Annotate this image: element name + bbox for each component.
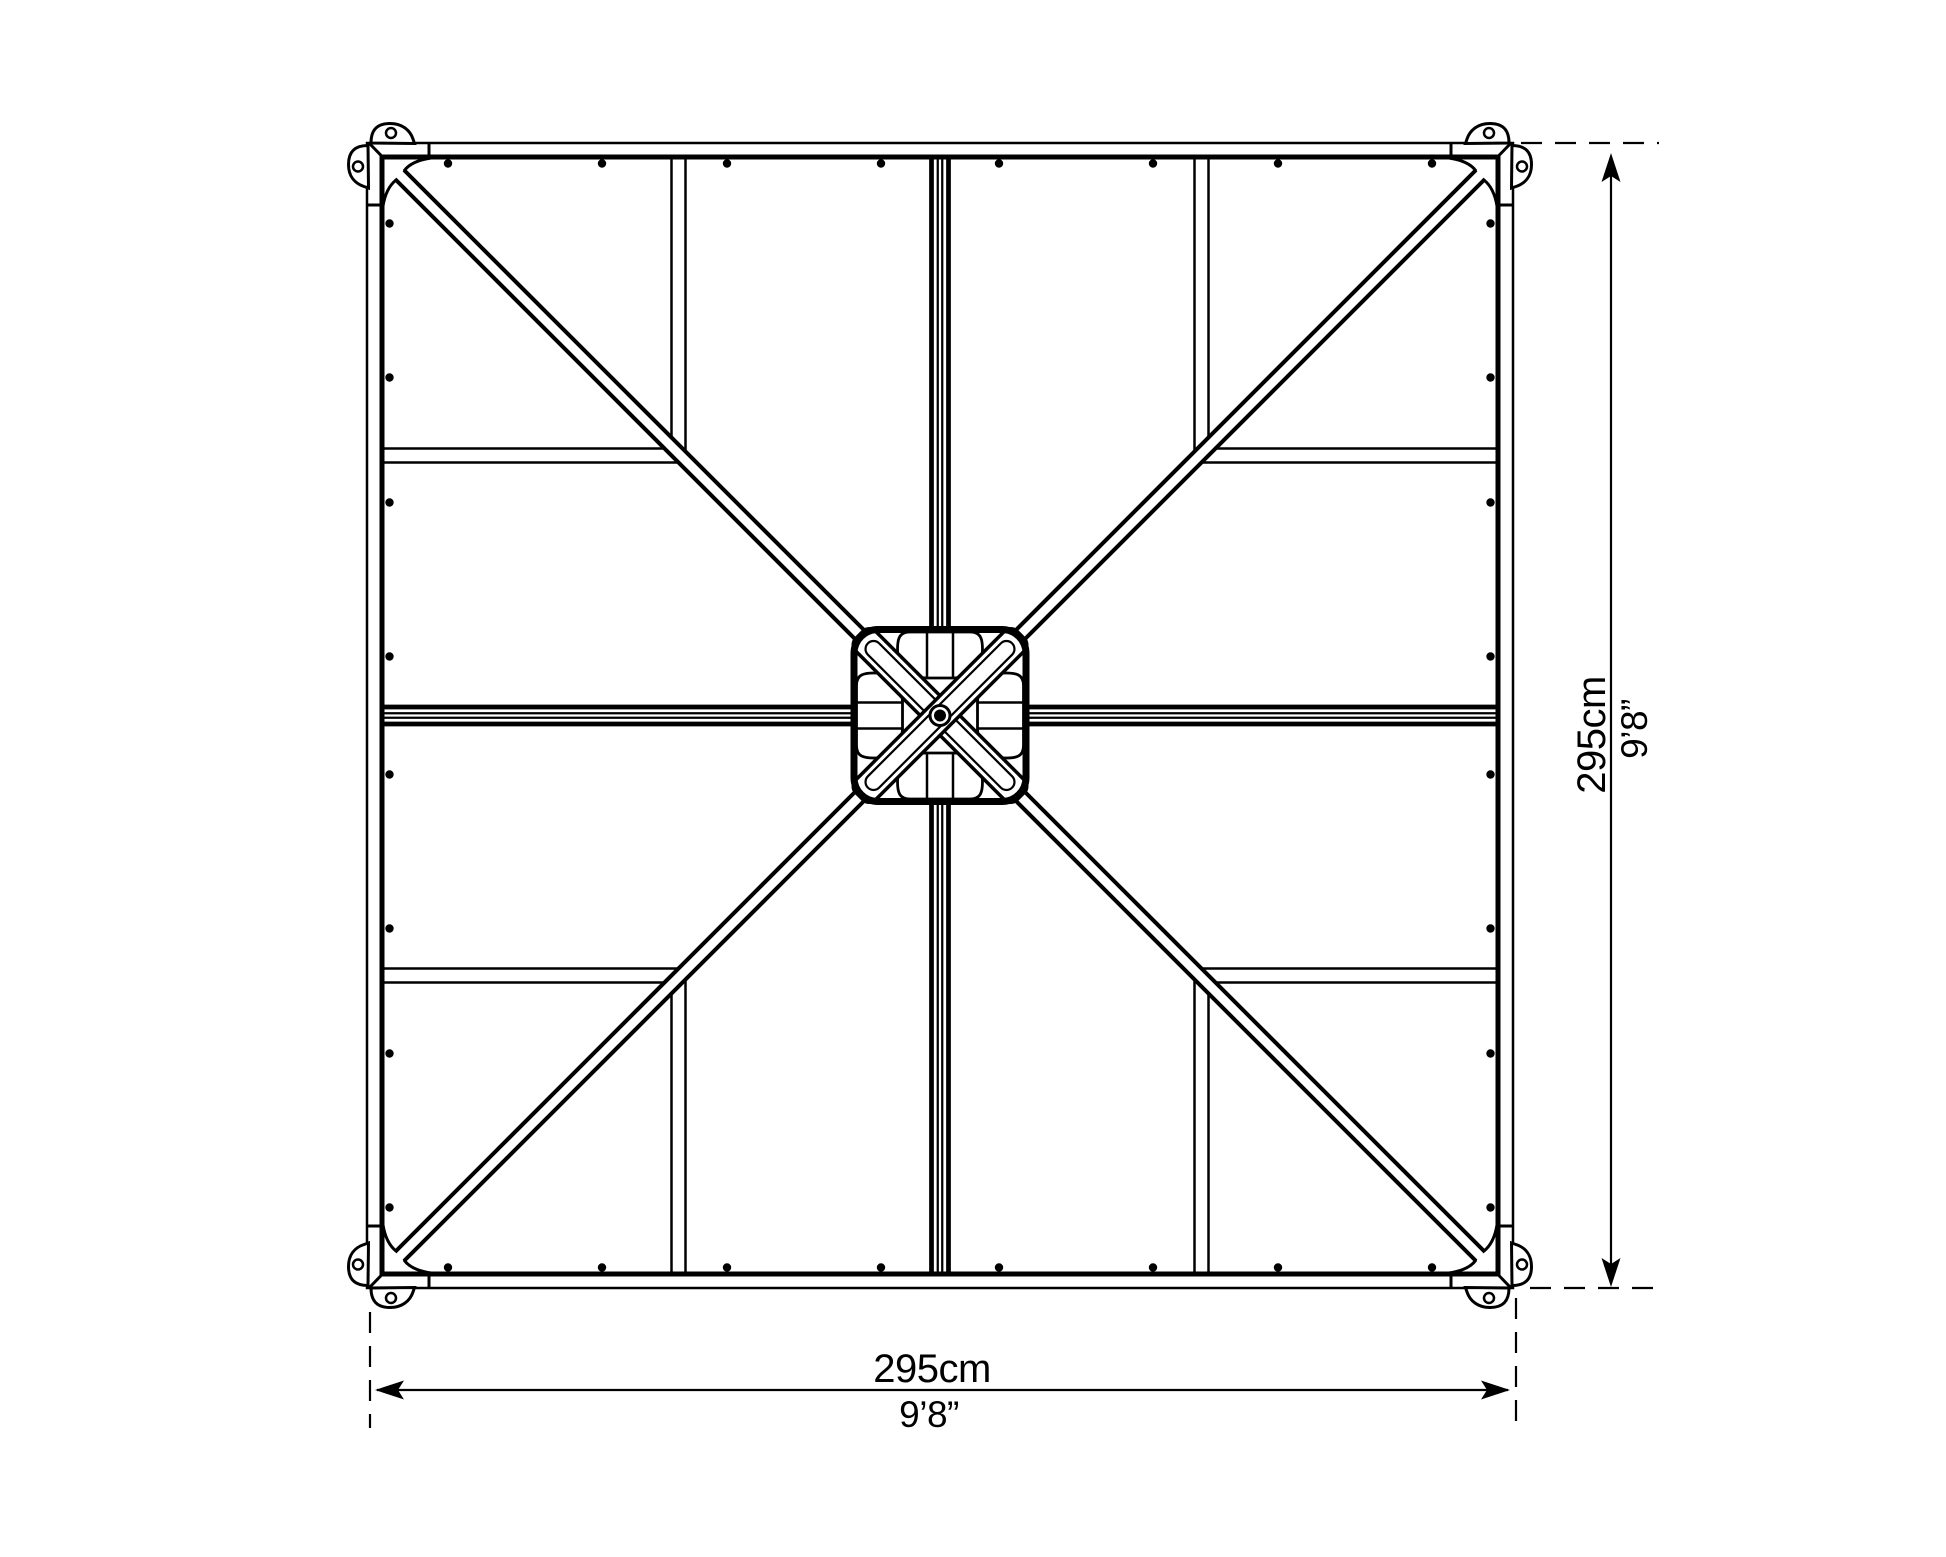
frame-drawing: 295cm 9’8” 295cm 9’8”	[349, 124, 1660, 1436]
bottom-dimension: 295cm 9’8”	[370, 1298, 1516, 1435]
bottom-dimension-imperial-label: 9’8”	[899, 1394, 959, 1435]
technical-drawing-page: 295cm 9’8” 295cm 9’8”	[0, 0, 1946, 1557]
right-dimension-metric-label: 295cm	[1570, 676, 1614, 794]
gazebo-roof-frame-plan-drawing: 295cm 9’8” 295cm 9’8”	[0, 0, 1946, 1557]
hub-center-pin	[934, 710, 946, 722]
right-dimension-imperial-label: 9’8”	[1614, 699, 1655, 759]
right-dimension: 295cm 9’8”	[1521, 143, 1659, 1288]
bottom-dimension-metric-label: 295cm	[873, 1347, 991, 1391]
center-hub	[849, 625, 1030, 806]
